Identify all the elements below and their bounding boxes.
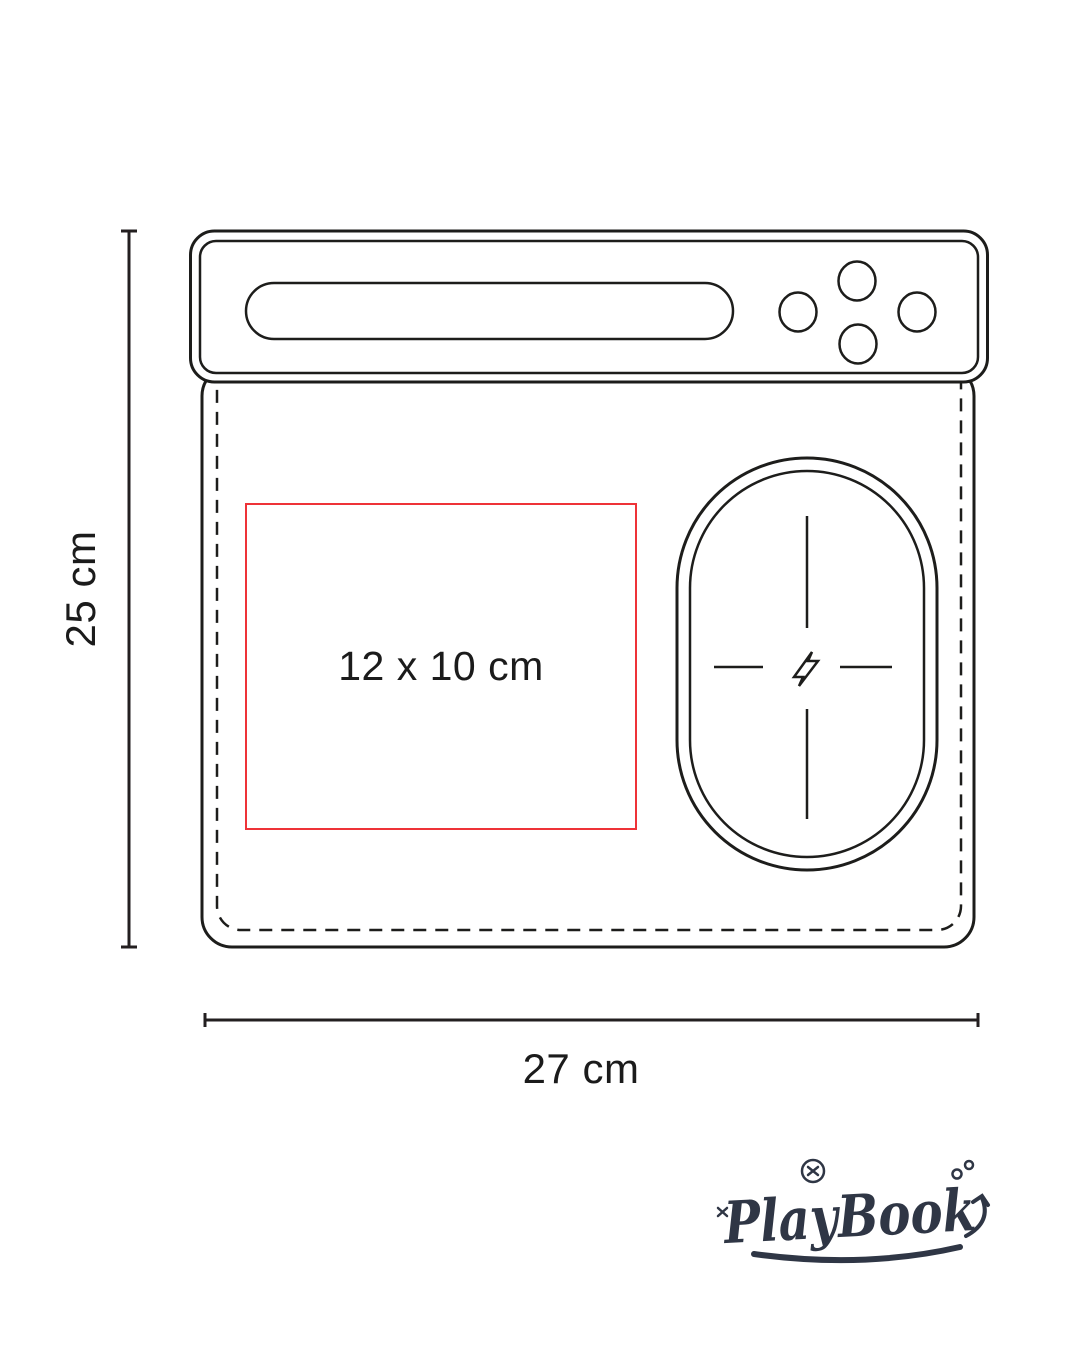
brand-logo: PlayBook — [714, 1156, 1006, 1274]
width-dimension-label: 27 cm — [523, 1045, 640, 1093]
print-area-label: 12 x 10 cm — [338, 643, 544, 690]
button-hole-left — [780, 293, 817, 332]
brand-wordmark: PlayBook — [721, 1176, 978, 1257]
pen-slot — [246, 283, 733, 339]
button-hole-top — [839, 262, 876, 301]
logo-circle-x-doodle — [802, 1160, 824, 1182]
height-dimension-label: 25 cm — [57, 531, 105, 648]
button-hole-right — [899, 293, 936, 332]
mousepad-dimension-diagram-page: 12 x 10 cm 25 cm 27 cm PlayBook — [0, 0, 1080, 1350]
button-hole-bottom — [840, 325, 877, 364]
print-area-box: 12 x 10 cm — [245, 503, 637, 830]
